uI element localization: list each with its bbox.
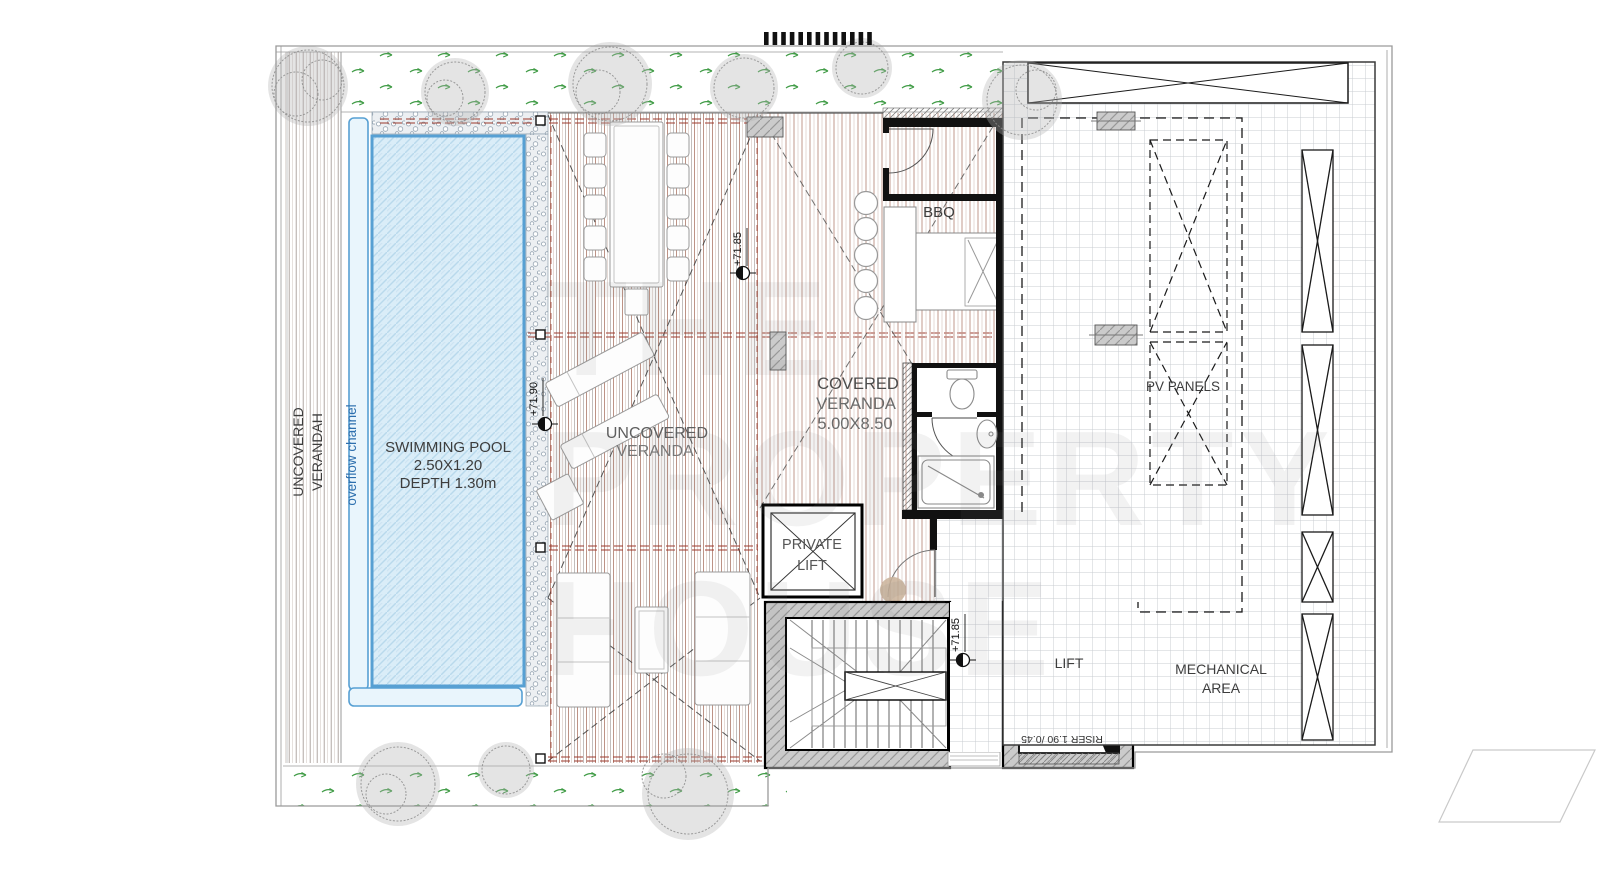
label-covered-1: COVERED [817,375,899,393]
watermark-line-1: THE [545,253,833,404]
watermark-line-3: HOUSE [545,553,1055,704]
label-pool-1: SWIMMING POOL [385,439,511,456]
label-side-verandah-1: UNCOVERED [290,407,306,496]
label-pool-2: 2.50X1.20 [414,457,482,474]
label-mechanical-1: MECHANICAL [1175,661,1267,677]
label-pv-panels: PV PANELS [1146,379,1220,394]
label-bbq: BBQ [923,204,955,221]
label-overflow-channel: overflow channel [344,404,359,505]
bbq-stools [855,192,878,320]
tree [642,748,734,840]
tree [478,742,534,798]
louver-4 [1302,614,1333,740]
tree [268,46,348,126]
stair-vent [948,752,1000,766]
level-stair: +71.85 [950,618,962,652]
label-covered-3: 5.00X8.50 [817,415,892,433]
label-private-lift-1: PRIVATE [782,537,842,553]
label-lift: LIFT [1055,655,1084,671]
label-pool-3: DEPTH 1.30m [400,475,497,492]
floor-plan-drawing: THE PROPERTY HOUSE +71.85 +71.90 +71.85 … [0,0,1603,890]
level-deck: +71.85 [732,232,744,266]
tree [356,742,440,826]
swimming-pool [372,136,524,686]
label-private-lift-2: LIFT [797,558,827,574]
label-uncovered-1: UNCOVERED [606,425,708,442]
label-covered-2: VERANDA [816,395,896,413]
tree [421,58,489,126]
label-mechanical-2: AREA [1202,680,1241,696]
floor-plan-page: THE PROPERTY HOUSE +71.85 +71.90 +71.85 … [0,0,1603,890]
level-pool: +71.90 [528,382,540,416]
tree [710,54,778,122]
skylight [1028,63,1348,103]
tree [568,42,652,126]
tree [982,60,1062,140]
label-riser: RISER 1.90 /0.45 [1021,733,1103,745]
louver-1 [1302,150,1333,332]
label-side-verandah-2: VERANDAH [309,413,325,491]
tree [832,38,892,98]
label-uncovered-2: VERANDA [616,443,694,460]
